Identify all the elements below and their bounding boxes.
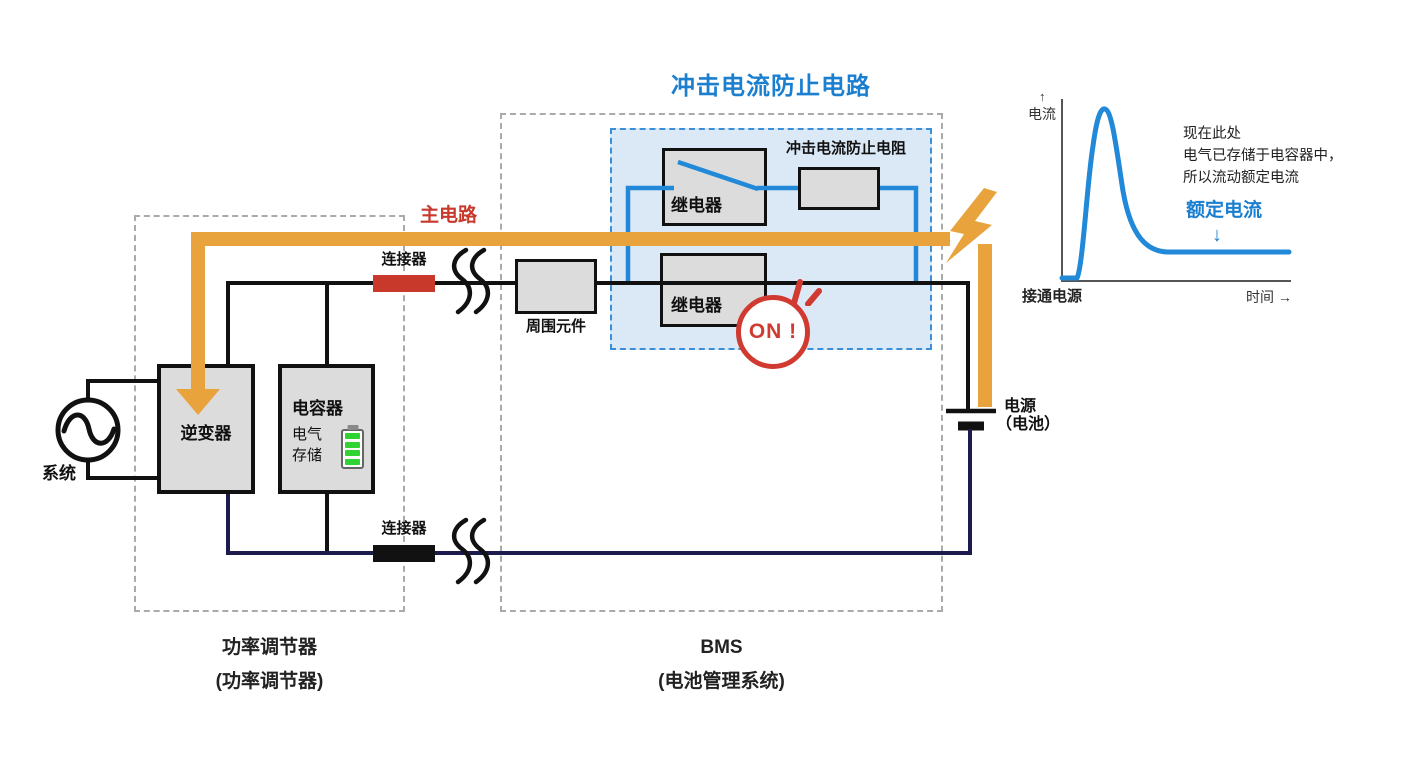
peripheral-box <box>515 259 597 314</box>
pcs-caption-line1: 功率调节器 <box>134 637 405 659</box>
graph-ylabel: 电流 <box>1028 106 1056 122</box>
graph-y-arrow: ↑ <box>1039 90 1046 105</box>
lightning-icon <box>946 188 997 263</box>
power-source-label-line2: （电池） <box>996 416 1060 434</box>
battery-symbol <box>946 411 996 426</box>
pcs-caption-line2: (功率调节器) <box>134 671 405 693</box>
diagram-canvas: ON ! 冲击电流防止电路 冲击电流防止电阻 继电器 继电器 主电路 连接器 周… <box>0 0 1410 783</box>
storage-label-line2: 存储 <box>292 447 322 464</box>
rated-current-label: 额定电流 <box>1186 200 1262 222</box>
battery-gauge-icon <box>341 429 364 469</box>
power-source-label-line1: 电源 <box>1004 398 1036 416</box>
inverter-label: 逆变器 <box>157 424 255 444</box>
main-circuit-label: 主电路 <box>420 205 477 227</box>
bms-caption-line1: BMS <box>500 637 943 659</box>
graph-note-line3: 所以流动额定电流 <box>1183 170 1299 187</box>
peripheral-label: 周围元件 <box>505 318 607 335</box>
inset-graph <box>1062 99 1291 281</box>
capacitor-label: 电容器 <box>292 399 343 419</box>
inrush-resistor-label: 冲击电流防止电阻 <box>756 140 936 157</box>
graph-origin-label: 接通电源 <box>1022 288 1082 305</box>
graph-xlabel: 时间 → <box>1246 289 1292 305</box>
rated-current-arrow: ↓ <box>1212 224 1222 247</box>
battery-bar <box>345 450 360 456</box>
connector-bottom-label: 连接器 <box>373 520 435 537</box>
graph-note-line1: 现在此处 <box>1183 126 1241 143</box>
wire-break-top-icon <box>454 250 488 312</box>
system-label: 系统 <box>42 464 76 484</box>
battery-bar <box>345 433 360 439</box>
relay-top-label: 继电器 <box>671 196 722 216</box>
graph-note-line2: 电气已存储于电容器中， <box>1183 148 1343 165</box>
bms-caption-line2: (电池管理系统) <box>500 671 943 693</box>
battery-bar <box>345 442 360 448</box>
battery-bar <box>345 459 360 465</box>
current-curve <box>1062 109 1289 278</box>
inrush-resistor-box <box>798 167 880 210</box>
on-badge: ON ! <box>736 295 810 369</box>
inrush-title: 冲击电流防止电路 <box>610 73 932 101</box>
ac-source-icon <box>58 400 118 460</box>
on-badge-label: ON ! <box>749 320 797 344</box>
connector-top-label: 连接器 <box>373 251 435 268</box>
storage-label-line1: 电气 <box>292 426 322 443</box>
wire-break-bottom-icon <box>454 520 488 582</box>
relay-bottom-label: 继电器 <box>671 296 722 316</box>
